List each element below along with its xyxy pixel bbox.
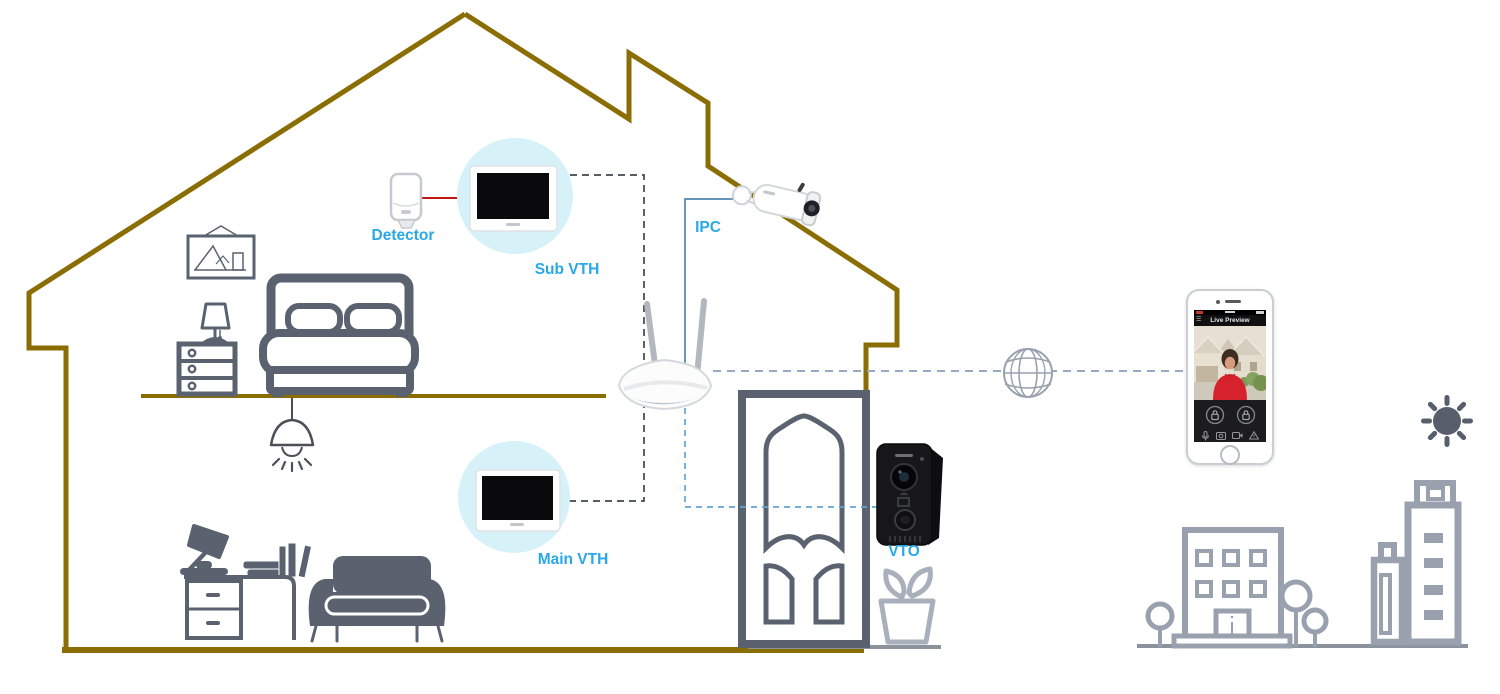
live-view-image xyxy=(1194,326,1266,400)
app-title: Live Preview xyxy=(1210,317,1249,324)
phone-home-button[interactable] xyxy=(1220,445,1240,465)
main-vth-monitor xyxy=(458,441,570,553)
record-icon[interactable] xyxy=(1232,431,1243,440)
detector-label: Detector xyxy=(372,227,435,245)
app-toolbar xyxy=(1194,429,1266,442)
signal-icon xyxy=(1196,311,1203,314)
alarm-icon[interactable] xyxy=(1249,431,1259,440)
desk xyxy=(184,577,294,640)
ipc-camera xyxy=(730,168,825,227)
router-antenna-right xyxy=(697,301,704,376)
snapshot-icon[interactable] xyxy=(1216,431,1226,440)
sub-vth-monitor xyxy=(457,138,573,254)
pendant-lamp xyxy=(271,398,313,471)
phone-front-camera xyxy=(1216,300,1220,304)
battery-icon xyxy=(1256,311,1264,314)
smart-home-diagram: Detector Sub VTH IPC Main VTH VTO ☰ Live… xyxy=(0,0,1500,694)
vto-speaker-grill xyxy=(890,536,920,542)
sun-icon xyxy=(1421,395,1473,447)
tower-buildings xyxy=(1374,483,1458,642)
bed xyxy=(263,278,415,397)
mic-icon[interactable] xyxy=(1201,431,1210,441)
unlock-gate-button[interactable] xyxy=(1235,404,1257,426)
menu-icon[interactable]: ☰ xyxy=(1196,315,1201,326)
books xyxy=(243,543,312,578)
globe-icon xyxy=(1004,349,1052,397)
sub-vth-label: Sub VTH xyxy=(535,261,600,279)
router xyxy=(619,301,711,409)
smartphone: ☰ Live Preview xyxy=(1186,289,1274,465)
phone-earpiece xyxy=(1225,300,1241,303)
light-rays-icon xyxy=(273,459,311,471)
motion-detector xyxy=(391,174,421,228)
ipc-label: IPC xyxy=(695,219,721,237)
city-buildings xyxy=(1137,483,1468,647)
nightstand xyxy=(179,344,235,394)
phone-screen: ☰ Live Preview xyxy=(1194,310,1266,442)
table-lamp xyxy=(200,304,230,345)
main-vth-label: Main VTH xyxy=(538,551,609,569)
main-vth-screen xyxy=(482,476,553,520)
app-control-area xyxy=(1194,400,1266,429)
vto-door-station xyxy=(877,444,943,545)
app-title-bar: ☰ Live Preview xyxy=(1194,315,1266,326)
vth-bus-dashed-line xyxy=(558,175,644,501)
unlock-door-button[interactable] xyxy=(1204,404,1226,426)
office-building xyxy=(1174,530,1290,646)
clock-text xyxy=(1225,311,1235,313)
sofa xyxy=(309,556,446,641)
sub-vth-screen xyxy=(477,173,549,219)
camera-antenna xyxy=(797,182,806,193)
diagram-canvas xyxy=(0,0,1500,694)
front-door xyxy=(742,394,866,648)
plant xyxy=(881,569,933,642)
picture-frame xyxy=(188,226,254,278)
desk-lamp xyxy=(180,526,228,575)
vto-label: VTO xyxy=(888,543,920,561)
